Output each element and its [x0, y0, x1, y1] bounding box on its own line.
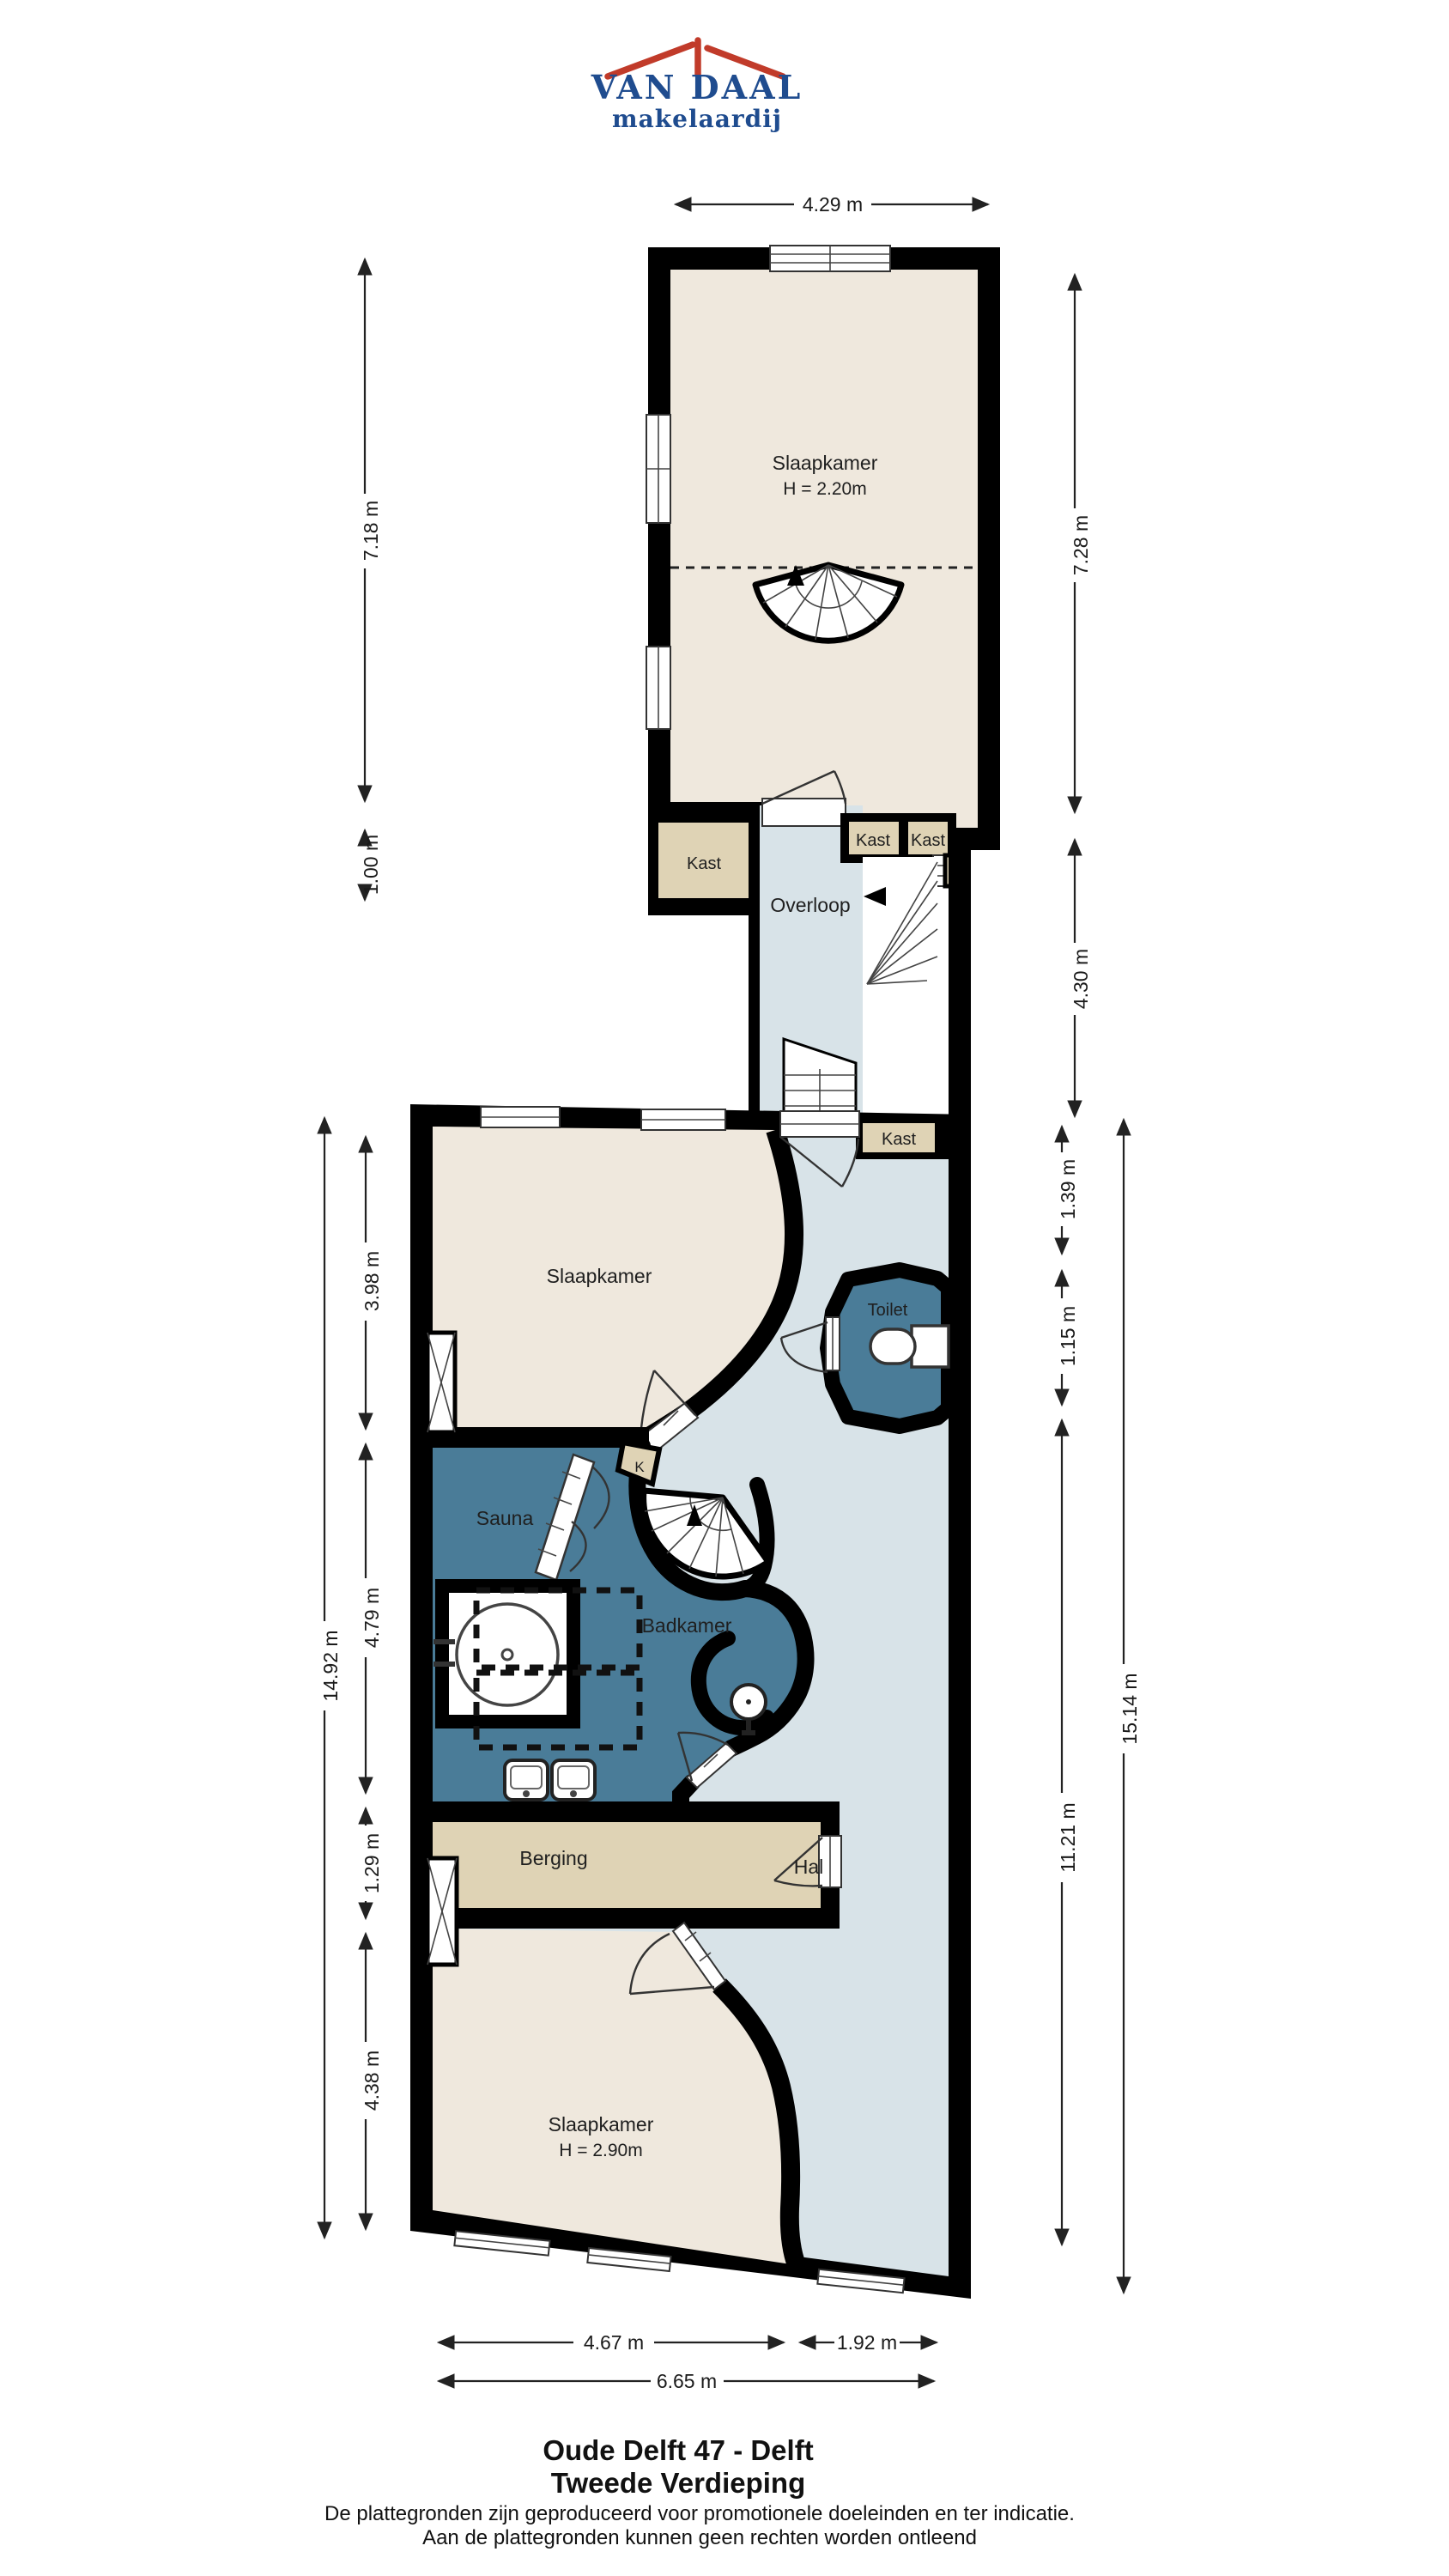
dimension-bottom-right-label: 1.92 m	[837, 2331, 897, 2354]
room-overloop-label: Overloop	[770, 894, 850, 916]
dimension-total-left: 14.92 m	[319, 1118, 342, 2238]
logo: VAN DAAL makelaardij	[591, 40, 803, 133]
plan-title-floor: Tweede Verdieping	[551, 2467, 805, 2499]
dimension-berging-height: 1.29 m	[361, 1808, 383, 1918]
window-top	[770, 246, 890, 271]
dimension-kast-offset: 1.39 m	[1057, 1127, 1079, 1254]
window-left-lower	[646, 647, 670, 729]
room-berging: Berging	[433, 1801, 841, 1929]
room-hal-label: Hal	[794, 1856, 824, 1878]
dimension-toilet-height-label: 1.15 m	[1057, 1306, 1079, 1366]
dimension-upper-left-height: 7.18 m	[360, 259, 382, 801]
dimension-bottom-total: 6.65 m	[439, 2370, 934, 2392]
dimension-upper-right-height: 7.28 m	[1070, 275, 1092, 812]
window-left-upper	[646, 415, 670, 523]
logo-name: VAN DAAL	[591, 68, 803, 106]
room-kast-b-label: Kast	[911, 831, 945, 850]
stairwell-connector: Kast Overloop Kast Kast K	[648, 771, 971, 1145]
dimension-berging-height-label: 1.29 m	[361, 1833, 383, 1893]
room-kast-left-label: Kast	[687, 854, 721, 873]
room-badkamer-label: Badkamer	[642, 1614, 732, 1637]
dimension-bottom-bedroom: 4.38 m	[361, 1934, 383, 2229]
room-kast-lower-label: Kast	[882, 1130, 916, 1149]
floorplan-canvas: VAN DAAL makelaardij 4.29 m	[0, 0, 1449, 2576]
dimension-hal-height: 11.21 m	[1057, 1420, 1079, 2245]
dimension-bottom-left: 4.67 m	[439, 2331, 784, 2354]
dimension-total-right-label: 15.14 m	[1119, 1673, 1141, 1744]
dimension-total-right: 15.14 m	[1119, 1120, 1141, 2293]
room-kast-a-label: Kast	[856, 831, 890, 850]
room-slaapkamer-mid-label: Slaapkamer	[547, 1265, 652, 1287]
dimension-stairwell-height: 4.30 m	[1070, 840, 1092, 1116]
dimension-top-width-label: 4.29 m	[803, 193, 863, 216]
room-berging-label: Berging	[519, 1847, 587, 1869]
shaft-upper-icon	[427, 1333, 455, 1432]
connector-right-wall	[949, 828, 971, 1120]
stairs-upper-flight-icon	[863, 857, 937, 1039]
plan-title: Oude Delft 47 - Delft Tweede Verdieping	[543, 2434, 813, 2499]
plan-title-address: Oude Delft 47 - Delft	[543, 2434, 813, 2466]
toilet-icon	[870, 1326, 949, 1367]
sink-left-icon	[505, 1760, 548, 1800]
dimension-top-width: 4.29 m	[676, 193, 988, 216]
room-slaapkamer-bottom-height: H = 2.90m	[559, 2141, 642, 2160]
dimension-bottom-bedroom-label: 4.38 m	[361, 2050, 383, 2111]
dimension-mid-bedroom-label: 3.98 m	[361, 1251, 383, 1311]
shaft-lower-icon	[427, 1858, 457, 1965]
window-mid-top-1	[481, 1107, 560, 1127]
room-k-mid-label: K	[634, 1459, 645, 1475]
dimension-bottom-left-label: 4.67 m	[584, 2331, 644, 2354]
dimension-upper-left-height-label: 7.18 m	[360, 501, 382, 561]
wall-sauna-top	[433, 1427, 649, 1448]
room-slaapkamer-top-label: Slaapkamer	[773, 452, 878, 474]
dimension-kast-depth-label: 1.00 m	[360, 835, 382, 895]
dimension-kast-offset-label: 1.39 m	[1057, 1159, 1079, 1219]
dimension-bath-zone: 4.79 m	[361, 1444, 383, 1793]
dimension-bottom-total-label: 6.65 m	[657, 2370, 717, 2392]
room-sauna-label: Sauna	[476, 1507, 534, 1529]
bathtub-icon	[433, 1586, 573, 1722]
lower-floor-unit: Slaapkamer Sau	[410, 1104, 971, 2299]
room-toilet-label: Toilet	[868, 1301, 908, 1320]
upper-floor-unit: Slaapkamer H = 2.20m	[646, 246, 1000, 850]
window-mid-top-2	[641, 1109, 725, 1130]
dimension-stairwell-height-label: 4.30 m	[1070, 949, 1092, 1009]
dimension-total-left-label: 14.92 m	[319, 1630, 342, 1701]
connector-left-wall	[749, 802, 760, 1115]
dimension-bottom-right: 1.92 m	[800, 2331, 937, 2354]
sink-right-icon	[552, 1760, 595, 1800]
disclaimer-line-1: De plattegronden zijn geproduceerd voor …	[324, 2502, 1075, 2525]
dimension-bath-zone-label: 4.79 m	[361, 1588, 383, 1648]
dimension-mid-bedroom: 3.98 m	[361, 1137, 383, 1429]
dimension-hal-height-label: 11.21 m	[1057, 1802, 1079, 1872]
plan-disclaimer: De plattegronden zijn geproduceerd voor …	[324, 2502, 1075, 2549]
logo-tagline: makelaardij	[612, 105, 782, 133]
disclaimer-line-2: Aan de plattegronden kunnen geen rechten…	[422, 2526, 977, 2549]
room-kast-lower: Kast	[856, 1115, 949, 1159]
room-slaapkamer-top	[670, 270, 978, 828]
room-slaapkamer-bottom-label: Slaapkamer	[549, 2113, 654, 2136]
dimension-upper-right-height-label: 7.28 m	[1070, 515, 1092, 575]
dimension-kast-depth: 1.00 m	[360, 830, 382, 900]
dimension-toilet-height: 1.15 m	[1057, 1271, 1079, 1405]
room-slaapkamer-top-height: H = 2.20m	[783, 479, 866, 499]
